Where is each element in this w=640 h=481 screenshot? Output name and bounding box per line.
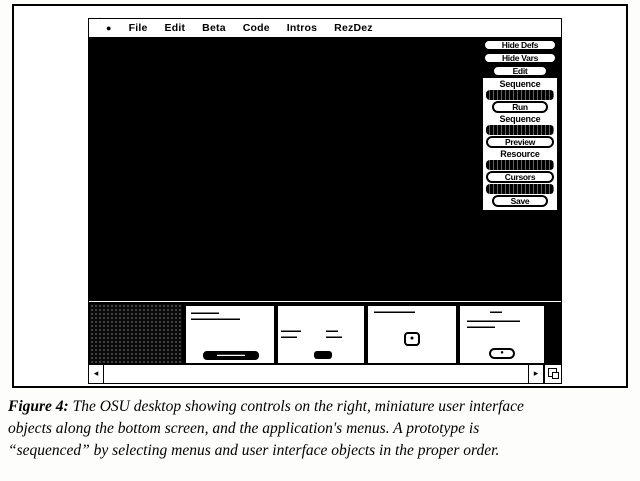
edit-button[interactable]: Edit [492,65,548,77]
figure-caption: Figure 4: The OSU desktop showing contro… [8,396,638,462]
greeked-text-line: ▬▬▬▬▬▬ ▬▬▬▬ ▬▬ [191,316,240,322]
menu-intros[interactable]: Intros [287,22,317,34]
menu-edit[interactable]: Edit [165,22,186,34]
grow-box-inner-square [552,372,559,379]
scroll-right-arrow-icon[interactable]: ▸ [528,365,543,383]
greeked-text-line: ▬▬▬▬ [326,334,342,340]
preview-button[interactable]: Preview [486,136,554,148]
sequence-control-group: Sequence Run Sequence Preview Resource C… [483,78,557,210]
mini-objects-strip: ▬▬▬▬ ▬▬▬ ▬▬▬▬▬▬ ▬▬▬▬ ▬▬ ▬▬▬▬▬▬▬ ▬▬▬ ▬▬ ▬… [89,301,561,363]
menu-file[interactable]: File [129,22,148,34]
selected-sequence-bar[interactable] [486,90,554,100]
menu-rezdez[interactable]: RezDez [334,22,373,34]
scrollbar-track[interactable] [104,365,528,383]
control-panel: Hide Defs Hide Vars Edit Sequence Run Se… [483,39,557,210]
selected-sequence-bar-2[interactable] [486,125,554,135]
greeked-text-line: ▬▬▬ ▬ [281,334,297,340]
scroll-left-arrow-icon[interactable]: ◂ [89,365,104,383]
osu-desktop-screen: ● File Edit Beta Code Intros RezDez Hide… [88,18,562,384]
caption-line-2: objects along the bottom screen, and the… [8,418,638,440]
mini-icon-button[interactable]: ● [404,332,420,346]
greeked-title-line: ▬▬▬▬▬ ▬▬▬ ▬▬ [374,309,415,315]
mini-round-button[interactable]: ● [489,348,515,359]
selected-resource-bar[interactable] [486,160,554,170]
mini-window-dialog-4[interactable]: ▬▬▬ ▬▬▬▬▬▬▬ ▬▬ ▬▬▬▬ ▬▬▬▬ ▬▬▬ ● [459,302,545,364]
mini-window-pattern[interactable] [89,302,183,364]
selected-cursor-bar[interactable] [486,184,554,194]
resource-label: Resource [485,149,555,160]
cursors-button[interactable]: Cursors [486,171,554,183]
menu-code[interactable]: Code [243,22,270,34]
menu-beta[interactable]: Beta [202,22,226,34]
mini-small-button[interactable] [314,351,332,359]
mini-window-dialog-2[interactable]: ▬▬▬ ▬▬ ▬▬▬ ▬ ▬▬▬ ▬▬▬▬ [277,302,365,364]
strip-filler [547,302,561,363]
run-button[interactable]: Run [492,101,548,113]
grow-box-icon[interactable] [543,365,561,383]
figure-frame: ● File Edit Beta Code Intros RezDez Hide… [12,4,628,388]
caption-line-3: “sequenced” by selecting menus and user … [8,440,638,462]
horizontal-scrollbar[interactable]: ◂ ▸ [89,363,561,383]
menu-bar: ● File Edit Beta Code Intros RezDez [89,19,561,40]
greeked-text-line: ▬▬▬▬ ▬▬▬ [467,324,495,330]
caption-figure-number: Figure 4: [8,398,69,415]
hide-defs-button[interactable]: Hide Defs [483,39,557,51]
save-button[interactable]: Save [492,195,548,207]
mini-window-dialog-3[interactable]: ▬▬▬▬▬ ▬▬▬ ▬▬ ● [367,302,457,364]
greeked-title-line: ▬▬▬ [490,309,502,315]
hide-vars-button[interactable]: Hide Vars [483,52,557,64]
mini-window-dialog-1[interactable]: ▬▬▬▬ ▬▬▬ ▬▬▬▬▬▬ ▬▬▬▬ ▬▬ ▬▬▬▬▬▬▬ [185,302,275,364]
mini-wide-button[interactable]: ▬▬▬▬▬▬▬ [203,351,259,360]
sequence-label-2: Sequence [485,114,555,125]
apple-menu-icon[interactable]: ● [106,23,112,33]
sequence-label: Sequence [485,79,555,90]
caption-line-1: Figure 4: The OSU desktop showing contro… [8,396,638,418]
caption-text: The OSU desktop showing controls on the … [69,398,524,415]
